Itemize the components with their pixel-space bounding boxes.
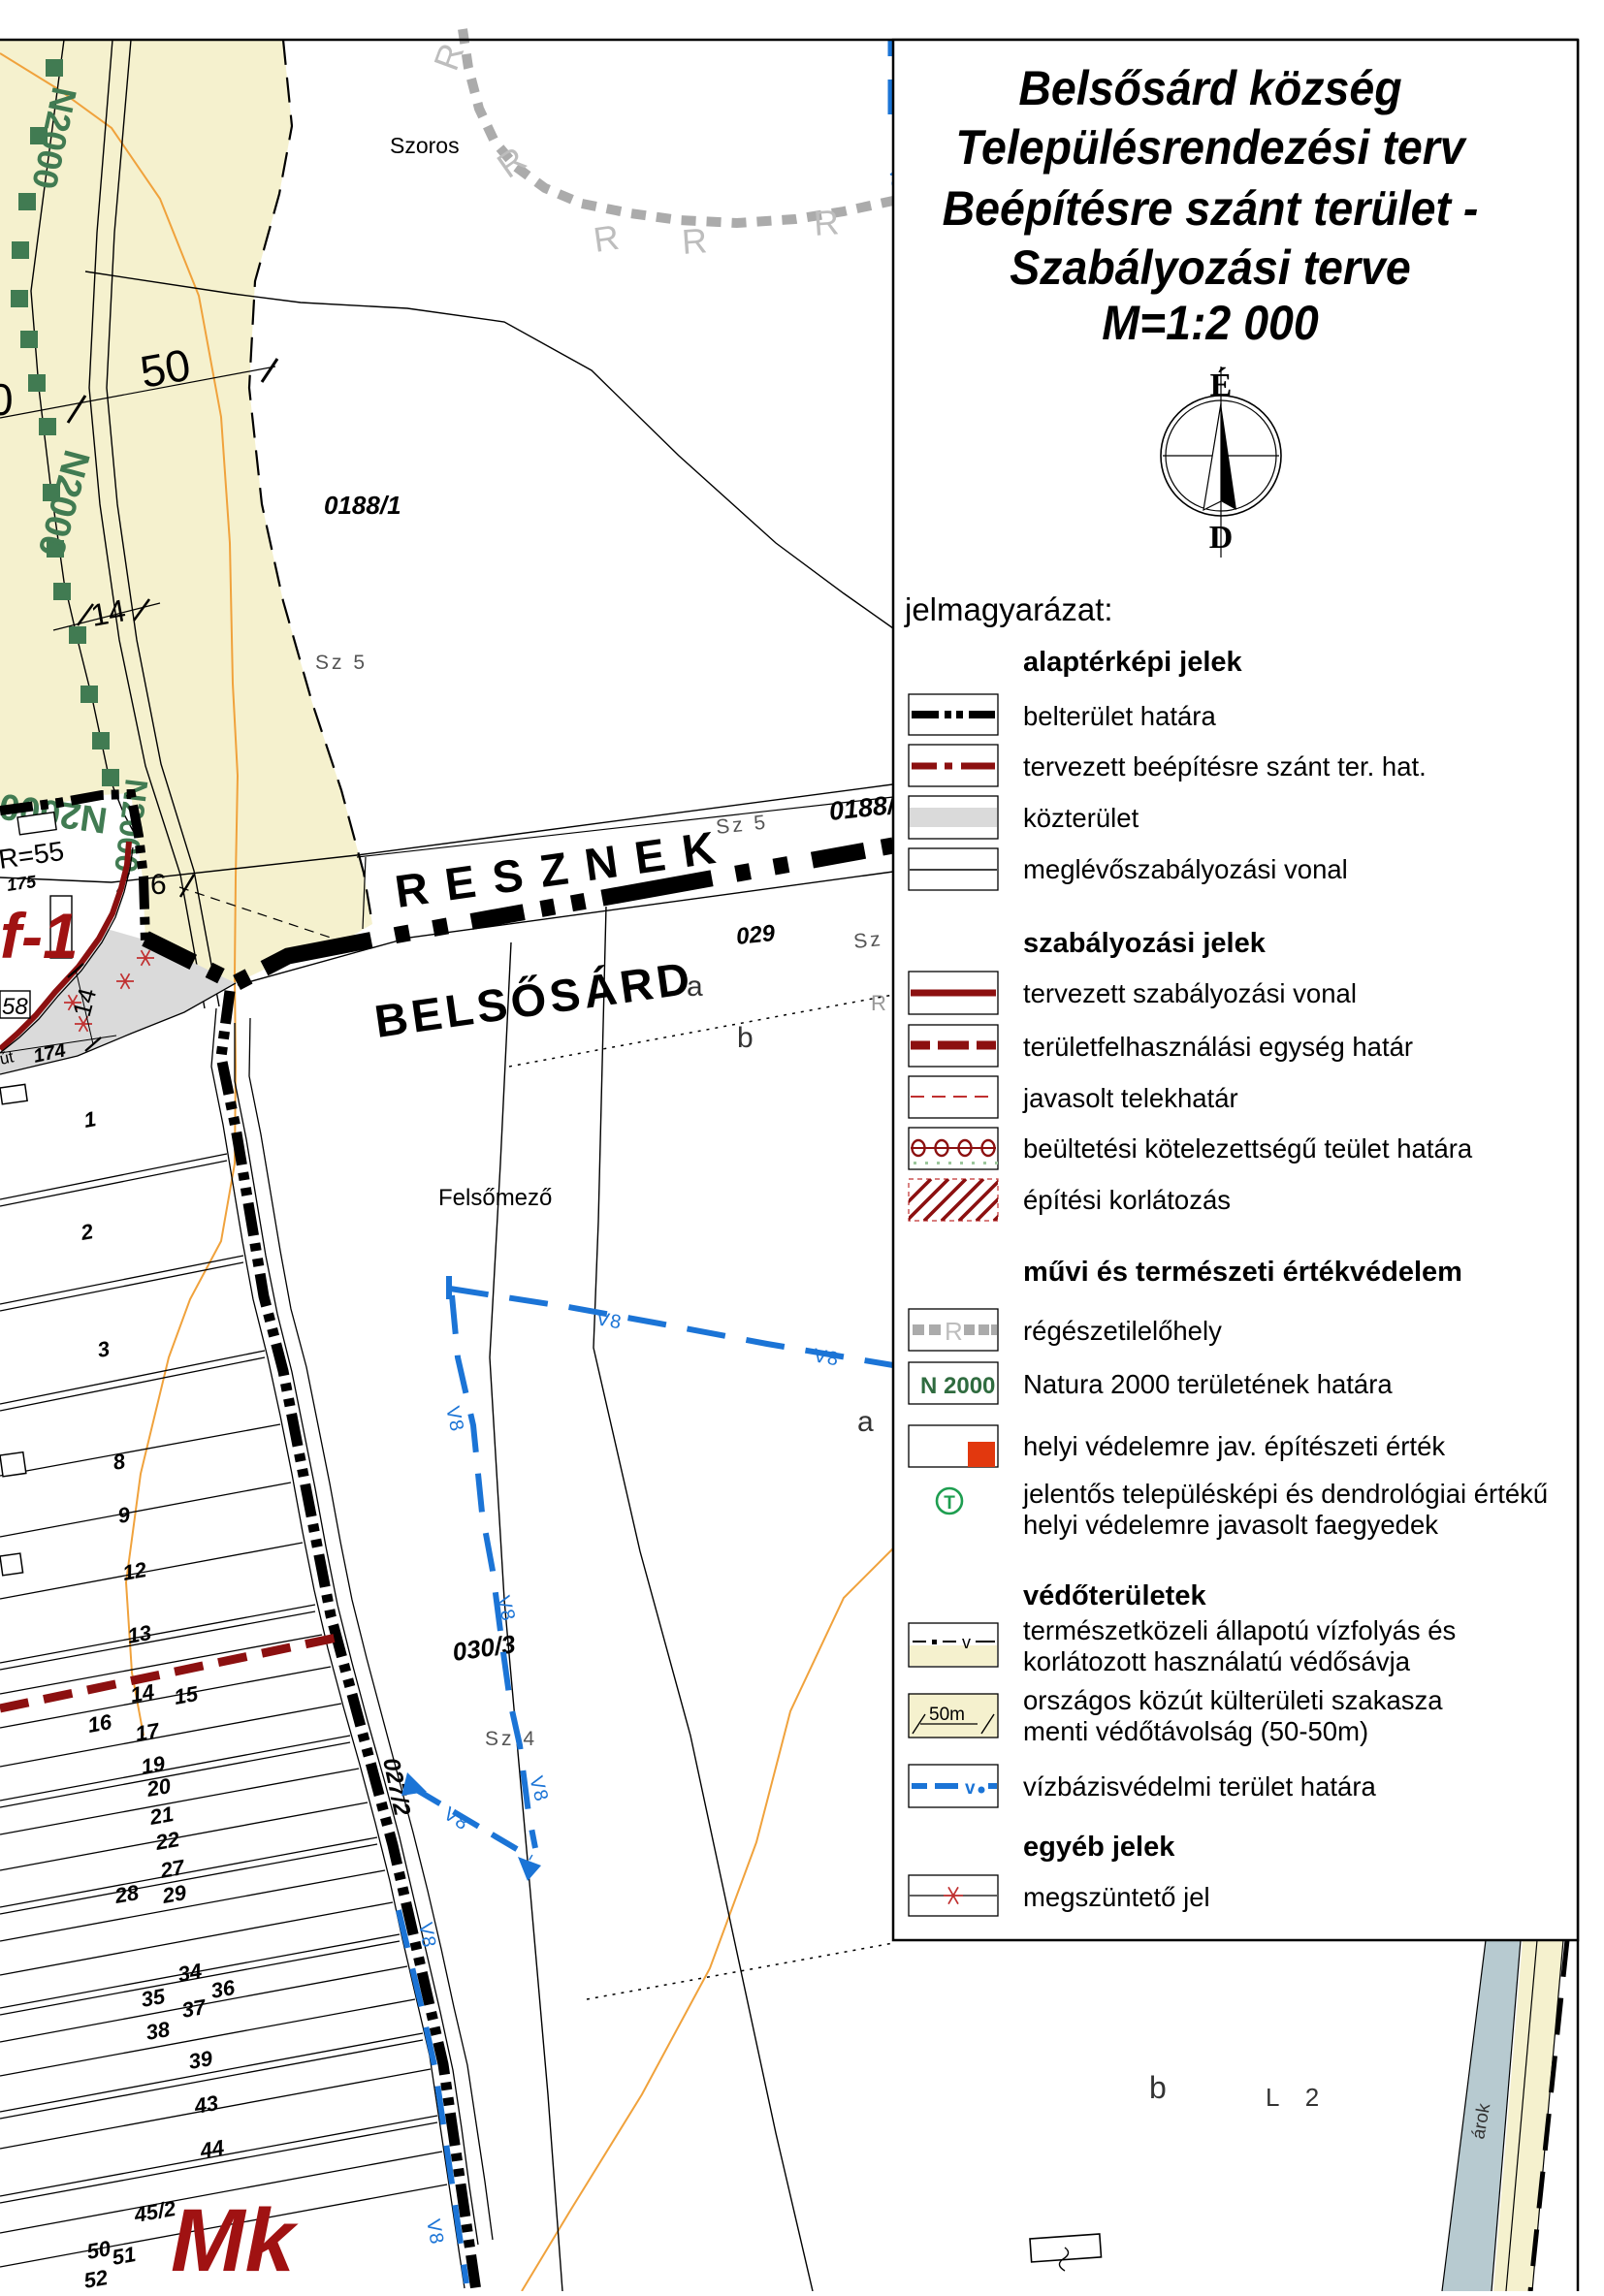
svg-text:51: 51 (111, 2242, 138, 2270)
svg-text:29: 29 (160, 1880, 189, 1908)
svg-text:50: 50 (85, 2236, 113, 2264)
svg-text:14: 14 (88, 592, 128, 633)
svg-text:jelmagyarázat:: jelmagyarázat: (904, 591, 1113, 627)
svg-text:V8: V8 (594, 1308, 624, 1333)
svg-text:T: T (944, 1493, 955, 1514)
svg-text:É: É (1210, 367, 1233, 403)
svg-text:029: 029 (735, 920, 777, 950)
svg-text:korlátozott használatú védősáv: korlátozott használatú védősávja (1023, 1646, 1411, 1676)
svg-text:L 2: L 2 (1266, 2083, 1329, 2112)
svg-text:16: 16 (86, 1709, 114, 1738)
svg-text:tervezett szabályozási vonal: tervezett szabályozási vonal (1023, 978, 1357, 1008)
svg-text:területfelhasználási egység ha: területfelhasználási egység határ (1023, 1032, 1413, 1062)
svg-text:Mk: Mk (171, 2191, 299, 2290)
svg-text:a: a (857, 1406, 874, 1438)
svg-text:6: 6 (150, 869, 167, 901)
svg-text:b: b (737, 1022, 754, 1054)
svg-text:Szabályozási terve: Szabályozási terve (1010, 240, 1410, 295)
svg-text:D: D (1209, 520, 1234, 556)
svg-text:N 2000: N 2000 (920, 1373, 995, 1399)
svg-text:50m: 50m (929, 1705, 965, 1725)
svg-text:beültetési kötelezettségű teül: beültetési kötelezettségű teület határa (1023, 1133, 1473, 1164)
svg-text:50: 50 (137, 339, 194, 398)
svg-text:javasolt telekhatár: javasolt telekhatár (1022, 1083, 1238, 1113)
svg-text:országos közút külterületi sza: országos közút külterületi szakasza (1023, 1685, 1443, 1715)
svg-text:V8: V8 (422, 2217, 447, 2247)
svg-text:régészetilelőhely: régészetilelőhely (1023, 1316, 1222, 1346)
svg-text:12: 12 (121, 1557, 149, 1585)
svg-text:alaptérképi jelek: alaptérképi jelek (1023, 647, 1243, 678)
svg-text:R: R (945, 1317, 963, 1346)
svg-text:vízbázisvédelmi terület határa: vízbázisvédelmi terület határa (1023, 1771, 1376, 1802)
svg-text:Sz 4: Sz 4 (485, 1728, 537, 1750)
svg-text:Natura 2000 területének határa: Natura 2000 területének határa (1023, 1369, 1393, 1399)
svg-text:0: 0 (0, 374, 14, 425)
svg-text:R: R (871, 991, 886, 1015)
svg-text:44: 44 (198, 2135, 226, 2163)
svg-text:belterület határa: belterület határa (1023, 701, 1216, 731)
svg-text:43: 43 (192, 2090, 220, 2119)
svg-text:13: 13 (126, 1620, 153, 1648)
svg-text:szabályozási jelek: szabályozási jelek (1023, 928, 1267, 959)
svg-text:0188/1: 0188/1 (324, 491, 401, 520)
svg-text:21: 21 (147, 1802, 176, 1830)
svg-text:b: b (1149, 2070, 1167, 2105)
svg-text:védőterületek: védőterületek (1023, 1580, 1206, 1611)
svg-text:R: R (681, 220, 709, 262)
svg-text:175: 175 (6, 872, 39, 895)
svg-text:34: 34 (176, 1959, 204, 1987)
svg-text:35: 35 (140, 1984, 168, 2012)
svg-text:22: 22 (153, 1827, 182, 1855)
svg-text:Belsősárd község: Belsősárd község (1018, 61, 1401, 115)
svg-text:egyéb jelek: egyéb jelek (1023, 1832, 1175, 1863)
svg-text:Sz 5: Sz 5 (315, 652, 368, 674)
svg-text:V8: V8 (414, 1921, 439, 1950)
svg-text:20: 20 (144, 1773, 174, 1802)
svg-text:helyi védelemre jav. építészet: helyi védelemre jav. építészeti érték (1023, 1431, 1445, 1461)
svg-text:38: 38 (144, 2017, 173, 2045)
svg-text:28: 28 (112, 1880, 142, 1908)
svg-text:Szoros: Szoros (390, 133, 460, 158)
svg-text:természetközeli állapotú vízfo: természetközeli állapotú vízfolyás és (1023, 1615, 1456, 1645)
svg-text:v: v (965, 1778, 976, 1799)
svg-text:jelentős településképi és dend: jelentős településképi és dendrológiai é… (1022, 1479, 1548, 1509)
svg-text:R: R (813, 202, 841, 243)
svg-text:36: 36 (209, 1975, 238, 2003)
svg-text:közterület: közterület (1023, 803, 1139, 833)
svg-text:v: v (962, 1633, 971, 1652)
svg-text:V8: V8 (812, 1345, 841, 1370)
svg-text:Felsőmező: Felsőmező (438, 1185, 552, 1211)
svg-text:15: 15 (173, 1681, 201, 1709)
svg-text:tervezett beépítésre szánt ter: tervezett beépítésre szánt ter. hat. (1023, 751, 1427, 781)
svg-text:menti védőtávolság (50-50m): menti védőtávolság (50-50m) (1023, 1716, 1368, 1746)
svg-text:Településrendezési terv: Településrendezési terv (955, 120, 1467, 175)
svg-text:Beépítésre szánt terület -: Beépítésre szánt terület - (943, 181, 1479, 236)
svg-text:művi és természeti értékvédele: művi és természeti értékvédelem (1023, 1257, 1462, 1288)
svg-text:helyi védelemre javasolt faegy: helyi védelemre javasolt faegyedek (1023, 1510, 1438, 1540)
svg-text:megszüntető jel: megszüntető jel (1023, 1882, 1210, 1912)
svg-text:M=1:2 000: M=1:2 000 (1102, 296, 1319, 350)
svg-text:építési korlátozás: építési korlátozás (1023, 1185, 1231, 1215)
svg-text:meglévőszabályozási vonal: meglévőszabályozási vonal (1023, 854, 1348, 884)
svg-text:f-1: f-1 (0, 900, 79, 972)
svg-text:58: 58 (2, 994, 28, 1020)
svg-text:39: 39 (187, 2046, 215, 2074)
